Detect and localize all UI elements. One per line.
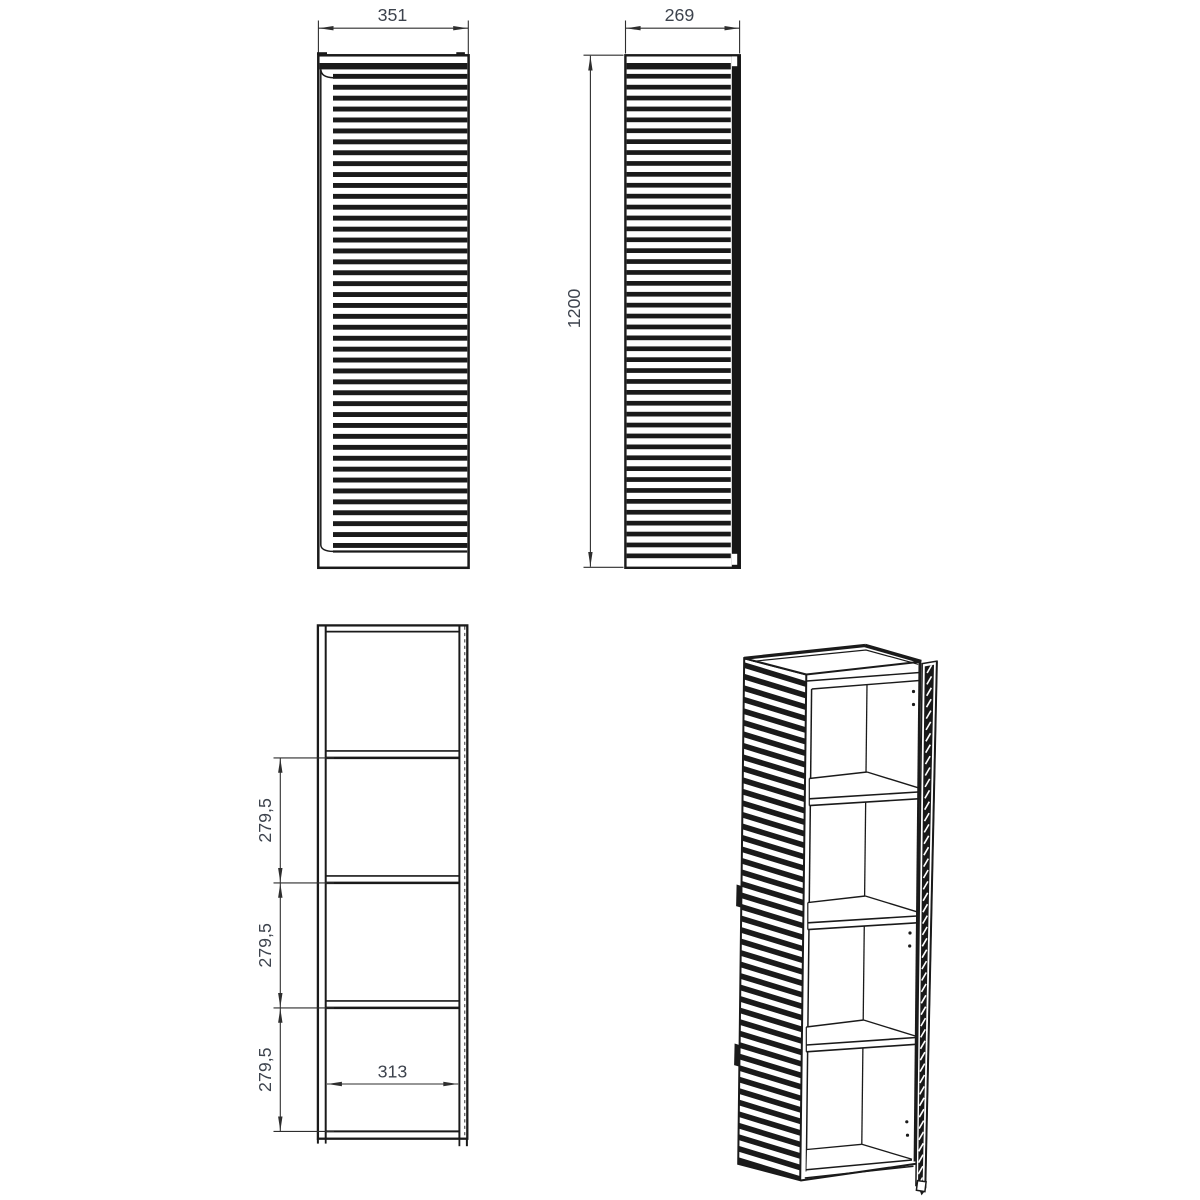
svg-text:313: 313: [378, 1062, 408, 1082]
svg-text:279,5: 279,5: [255, 923, 275, 968]
svg-text:279,5: 279,5: [255, 798, 275, 843]
svg-text:1200: 1200: [564, 289, 584, 329]
svg-text:279,5: 279,5: [255, 1047, 275, 1092]
svg-text:269: 269: [665, 5, 695, 25]
svg-text:351: 351: [378, 5, 408, 25]
